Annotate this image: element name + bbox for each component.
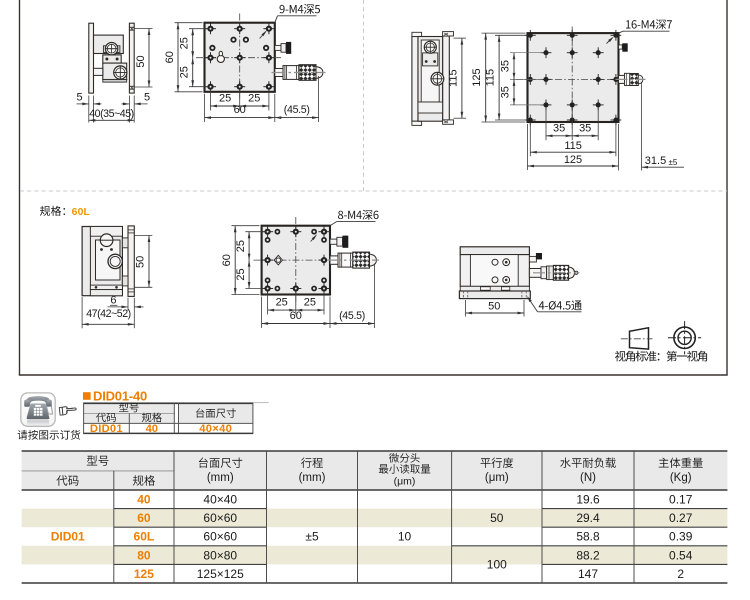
svg-text:60: 60 — [234, 104, 246, 116]
svg-text:115: 115 — [448, 69, 460, 87]
svg-text:60: 60 — [164, 51, 176, 63]
svg-text:40(35~45): 40(35~45) — [89, 108, 134, 120]
svg-text:(mm): (mm) — [299, 472, 326, 484]
svg-text:(Kg): (Kg) — [670, 472, 692, 484]
svg-text:35: 35 — [553, 122, 565, 134]
svg-text:35: 35 — [500, 86, 512, 98]
svg-text:25: 25 — [248, 93, 260, 105]
svg-text:50: 50 — [488, 300, 500, 312]
svg-text:35: 35 — [579, 122, 591, 134]
svg-text:5: 5 — [144, 92, 150, 104]
svg-text:35: 35 — [500, 60, 512, 72]
svg-text:DID01-40: DID01-40 — [93, 389, 147, 404]
svg-text:58.8: 58.8 — [576, 530, 600, 544]
svg-text:50: 50 — [135, 55, 147, 67]
svg-text:40: 40 — [146, 423, 158, 435]
svg-text:±5: ±5 — [305, 530, 319, 544]
svg-text:(N): (N) — [580, 472, 596, 484]
svg-text:DID01: DID01 — [90, 423, 123, 435]
svg-text:0.39: 0.39 — [669, 530, 693, 544]
svg-text:10: 10 — [398, 530, 412, 544]
svg-text:60×60: 60×60 — [203, 530, 237, 544]
svg-text:80: 80 — [137, 548, 151, 562]
svg-text:25: 25 — [235, 240, 247, 252]
svg-text:40×40: 40×40 — [199, 423, 232, 435]
svg-text:50: 50 — [490, 511, 504, 525]
svg-text:115: 115 — [485, 69, 497, 87]
svg-text:60: 60 — [221, 254, 233, 266]
svg-text:60×60: 60×60 — [203, 511, 237, 525]
svg-text:47(42~52): 47(42~52) — [86, 308, 131, 320]
svg-text:60L: 60L — [134, 530, 155, 544]
svg-text:50: 50 — [135, 256, 147, 268]
svg-text:125×125: 125×125 — [197, 567, 244, 581]
svg-text:115: 115 — [564, 140, 582, 152]
svg-text:29.4: 29.4 — [576, 511, 600, 525]
svg-text:25: 25 — [276, 297, 288, 309]
svg-text:(μm): (μm) — [394, 475, 416, 487]
svg-text:(μm): (μm) — [485, 472, 509, 484]
svg-text:25: 25 — [219, 93, 231, 105]
svg-text:25: 25 — [179, 66, 191, 78]
svg-text:25: 25 — [179, 37, 191, 49]
svg-text:60: 60 — [137, 511, 151, 525]
svg-text:60L: 60L — [72, 207, 91, 218]
svg-text:31.5: 31.5 — [645, 155, 666, 167]
svg-text:DID01: DID01 — [51, 530, 85, 544]
svg-text:60: 60 — [290, 310, 302, 322]
svg-text:2: 2 — [677, 567, 684, 581]
svg-text:0.54: 0.54 — [669, 548, 693, 562]
svg-text:40: 40 — [137, 493, 151, 507]
svg-text:100: 100 — [487, 558, 507, 572]
svg-text:80×80: 80×80 — [203, 548, 237, 562]
svg-text:(45.5): (45.5) — [339, 310, 365, 322]
svg-text:40×40: 40×40 — [203, 493, 237, 507]
svg-text:125: 125 — [134, 567, 154, 581]
svg-text:6: 6 — [110, 295, 116, 307]
svg-text:125: 125 — [471, 68, 483, 86]
svg-text:147: 147 — [578, 567, 598, 581]
svg-text:125: 125 — [564, 154, 582, 166]
svg-text:±5: ±5 — [669, 158, 678, 167]
svg-text:5: 5 — [76, 92, 82, 104]
svg-text:88.2: 88.2 — [576, 548, 600, 562]
svg-text:25: 25 — [235, 268, 247, 280]
svg-text:19.6: 19.6 — [576, 493, 600, 507]
svg-text:0.17: 0.17 — [669, 493, 693, 507]
svg-text:0.27: 0.27 — [669, 511, 693, 525]
svg-text:(45.5): (45.5) — [284, 104, 310, 116]
svg-text:25: 25 — [304, 297, 316, 309]
svg-text:(mm): (mm) — [207, 472, 234, 484]
